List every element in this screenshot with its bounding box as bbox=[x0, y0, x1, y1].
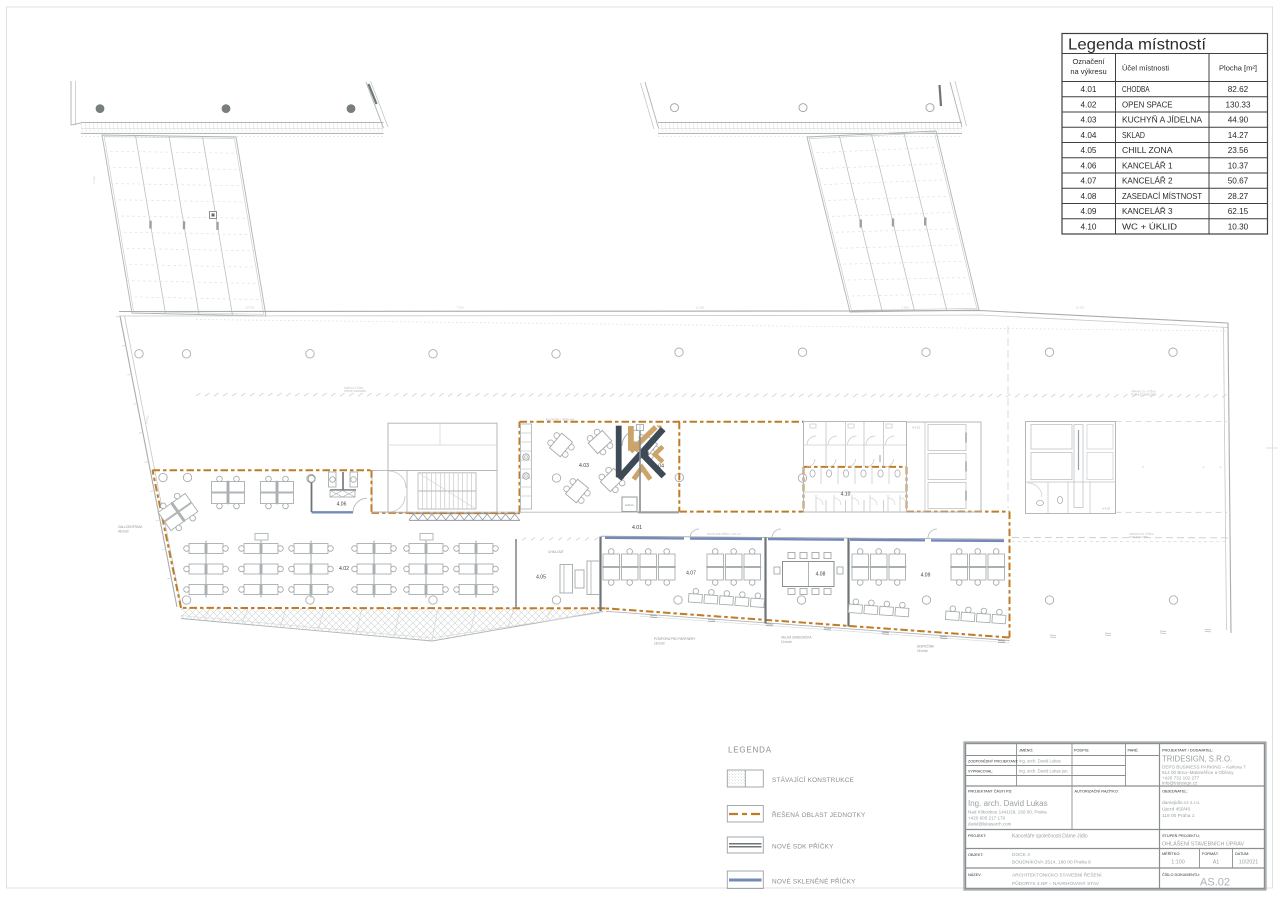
svg-text:PARÉ:: PARÉ: bbox=[1128, 748, 1139, 753]
svg-text:7 425: 7 425 bbox=[902, 306, 909, 310]
svg-text:×: × bbox=[1142, 465, 1144, 469]
svg-text:14.27: 14.27 bbox=[1228, 131, 1249, 140]
svg-text:MĚŘÍTKO:: MĚŘÍTKO: bbox=[1162, 851, 1180, 856]
svg-text:A 4.01: A 4.01 bbox=[912, 426, 920, 430]
svg-text:VELKÁ ZASEDAČKA: VELKÁ ZASEDAČKA bbox=[781, 635, 812, 640]
svg-text:4.01: 4.01 bbox=[1081, 85, 1097, 94]
svg-text:PROJEKTANT / DODAVATEL:: PROJEKTANT / DODAVATEL: bbox=[1162, 749, 1213, 753]
svg-text:ČÍSLO DOKUMENTU:: ČÍSLO DOKUMENTU: bbox=[1162, 872, 1200, 877]
svg-text:BOUDNÍKOVA 2514, 180 00 Praha: BOUDNÍKOVA 2514, 180 00 Praha 8 bbox=[1012, 859, 1091, 866]
svg-text:Účel místnosti: Účel místnosti bbox=[1122, 64, 1169, 73]
svg-text:PODPIS:: PODPIS: bbox=[1074, 749, 1089, 753]
svg-text:24 750: 24 750 bbox=[246, 306, 255, 310]
svg-text:4.02: 4.02 bbox=[1081, 100, 1097, 109]
svg-text:11 250: 11 250 bbox=[696, 306, 705, 310]
svg-text:SKLAD: SKLAD bbox=[1122, 131, 1145, 140]
svg-text:DOCK 4: DOCK 4 bbox=[1012, 852, 1030, 858]
svg-text:4.03: 4.03 bbox=[579, 463, 589, 469]
svg-text:+420 605 217 170: +420 605 217 170 bbox=[968, 816, 1006, 821]
svg-text:CALLCENTRUM: CALLCENTRUM bbox=[118, 525, 142, 529]
svg-text:ŘEŠENÁ OBLAST JEDNOTKY: ŘEŠENÁ OBLAST JEDNOTKY bbox=[772, 810, 866, 819]
svg-text:4.08: 4.08 bbox=[816, 572, 826, 578]
svg-text:Ing. arch. David Lukas jun.: Ing. arch. David Lukas jun. bbox=[1019, 769, 1069, 774]
svg-text:OHLÁŠENÍ STAVEBNÍCH ÚPRAV: OHLÁŠENÍ STAVEBNÍCH ÚPRAV bbox=[1162, 841, 1244, 848]
svg-text:A1: A1 bbox=[1213, 860, 1220, 866]
svg-text:NOVÉ SKLENĚNÉ PŘÍČKY: NOVÉ SKLENĚNÉ PŘÍČKY bbox=[772, 877, 856, 886]
svg-text:CHODBA: CHODBA bbox=[1122, 85, 1150, 94]
svg-text:CHILL ZONA: CHILL ZONA bbox=[1122, 146, 1173, 155]
svg-text:4.03: 4.03 bbox=[1081, 116, 1097, 125]
svg-text:info@tridesign.cz: info@tridesign.cz bbox=[1162, 781, 1198, 786]
svg-text:10.30: 10.30 bbox=[1228, 222, 1249, 231]
svg-text:50.67: 50.67 bbox=[1228, 177, 1249, 186]
svg-text:8 250: 8 250 bbox=[92, 176, 97, 184]
svg-text:4.05: 4.05 bbox=[1081, 146, 1097, 155]
svg-text:KANCELÁŘ 2: KANCELÁŘ 2 bbox=[1122, 176, 1173, 186]
svg-text:AS.02: AS.02 bbox=[1200, 877, 1230, 889]
svg-text:4.01: 4.01 bbox=[632, 525, 642, 531]
svg-text:STÁVAJÍCÍ KONSTRUKCE: STÁVAJÍCÍ KONSTRUKCE bbox=[772, 775, 854, 784]
svg-text:PODHLED 2650: PODHLED 2650 bbox=[1129, 535, 1149, 539]
svg-text:18 míst: 18 míst bbox=[917, 649, 928, 653]
svg-text:4.04: 4.04 bbox=[654, 464, 664, 470]
svg-text:KANCELÁŘ 1: KANCELÁŘ 1 bbox=[1122, 160, 1173, 170]
svg-text:DATUM:: DATUM: bbox=[1235, 852, 1249, 856]
svg-text:×: × bbox=[1202, 466, 1204, 470]
svg-text:Označení: Označení bbox=[1072, 57, 1105, 66]
svg-text:44.90: 44.90 bbox=[1228, 116, 1249, 125]
svg-text:LEGENDA: LEGENDA bbox=[728, 746, 772, 755]
svg-text:CHILLOUT: CHILLOUT bbox=[548, 550, 564, 554]
svg-text:4.09: 4.09 bbox=[1081, 207, 1097, 216]
svg-text:ZODPOVĚDNÝ PROJEKTANT:: ZODPOVĚDNÝ PROJEKTANT: bbox=[968, 759, 1018, 764]
svg-text:4.04: 4.04 bbox=[1081, 131, 1097, 140]
svg-text:KANCELÁŘ 3: KANCELÁŘ 3 bbox=[1122, 206, 1173, 216]
svg-text:OBJEDNATEL:: OBJEDNATEL: bbox=[1162, 790, 1188, 794]
svg-text:STUPEŇ PROJEKTU:: STUPEŇ PROJEKTU: bbox=[1162, 833, 1200, 838]
svg-text:Legenda místností: Legenda místností bbox=[1068, 37, 1207, 54]
svg-text:62.15: 62.15 bbox=[1228, 207, 1249, 216]
svg-text:82.62: 82.62 bbox=[1228, 85, 1249, 94]
svg-text:4.09: 4.09 bbox=[921, 573, 931, 579]
svg-text:AUTORIZAČNÍ RAZÍTKO:: AUTORIZAČNÍ RAZÍTKO: bbox=[1075, 789, 1119, 794]
svg-text:DEPO BUSINESS PARKING – Karlov: DEPO BUSINESS PARKING – Karlova 7 bbox=[1162, 765, 1246, 770]
svg-text:4.07: 4.07 bbox=[686, 571, 696, 577]
svg-text:PROJEKTANT ČÁSTI PD:: PROJEKTANT ČÁSTI PD: bbox=[968, 789, 1012, 794]
svg-text:Nad Klikovkou 1441/29, 150 00,: Nad Klikovkou 1441/29, 150 00, Praha bbox=[968, 810, 1047, 815]
svg-text:PODPORA PRO PARTNERY: PODPORA PRO PARTNERY bbox=[654, 637, 696, 641]
svg-text:Ing. arch. David Lukas: Ing. arch. David Lukas bbox=[1019, 759, 1061, 764]
svg-text:×: × bbox=[1219, 466, 1221, 470]
svg-text:4.10: 4.10 bbox=[841, 492, 851, 498]
svg-text:130.33: 130.33 bbox=[1225, 100, 1250, 109]
svg-text:TRIDESIGN, S.R.O.: TRIDESIGN, S.R.O. bbox=[1162, 755, 1232, 764]
svg-text:46 míst: 46 míst bbox=[118, 530, 129, 534]
svg-text:28.27: 28.27 bbox=[1228, 192, 1249, 201]
svg-text:OPEN SPACE: OPEN SPACE bbox=[1122, 100, 1173, 109]
svg-text:118 00 Praha 1: 118 00 Praha 1 bbox=[1162, 813, 1195, 819]
svg-text:10/2021: 10/2021 bbox=[1239, 860, 1259, 866]
svg-text:16 250: 16 250 bbox=[1076, 306, 1085, 310]
svg-text:NÁZEV:: NÁZEV: bbox=[968, 873, 982, 877]
svg-text:10 míst: 10 míst bbox=[781, 640, 792, 644]
svg-text:VYPRACOVAL:: VYPRACOVAL: bbox=[968, 770, 993, 774]
svg-text:david@lukasarch.com: david@lukasarch.com bbox=[968, 822, 1012, 827]
svg-text:Kanceláře společnosti Dáme Jíd: Kanceláře společnosti Dáme Jídlo bbox=[1012, 834, 1088, 840]
svg-text:Újezd 450/40: Újezd 450/40 bbox=[1162, 806, 1191, 813]
svg-text:4.06: 4.06 bbox=[337, 502, 347, 508]
svg-text:PROJEKT:: PROJEKT: bbox=[968, 834, 986, 838]
svg-text:A 4.02: A 4.02 bbox=[1102, 507, 1110, 511]
svg-text:NOVÉ SDK PŘÍČKY: NOVÉ SDK PŘÍČKY bbox=[772, 842, 834, 851]
svg-text:Ing. arch. David Lukas: Ing. arch. David Lukas bbox=[968, 799, 1048, 808]
svg-text:KUCHYŇ A JÍDELNA: KUCHYŇ A JÍDELNA bbox=[1122, 115, 1203, 125]
svg-text:KUCHYŇ + JÍDELNA: KUCHYŇ + JÍDELNA bbox=[546, 416, 574, 421]
svg-text:JMÉNO:: JMÉNO: bbox=[1019, 748, 1033, 753]
svg-text:FORMÁT:: FORMÁT: bbox=[1202, 852, 1219, 856]
svg-text:1:100: 1:100 bbox=[1171, 860, 1185, 866]
svg-text:4.07: 4.07 bbox=[1081, 177, 1097, 186]
svg-text:4.05: 4.05 bbox=[536, 575, 546, 581]
svg-text:4.08: 4.08 bbox=[1081, 192, 1097, 201]
svg-text:WC + ÚKLID: WC + ÚKLID bbox=[1122, 221, 1177, 231]
svg-text:PODHLED 2650/2800: PODHLED 2650/2800 bbox=[1131, 393, 1157, 397]
svg-text:damejidlo.cz s.r.o.: damejidlo.cz s.r.o. bbox=[1162, 800, 1200, 806]
svg-text:4.06: 4.06 bbox=[1081, 161, 1097, 170]
svg-text:7 425: 7 425 bbox=[457, 306, 464, 310]
svg-text:OBJEKT:: OBJEKT: bbox=[968, 853, 983, 857]
svg-text:PŮDORYS 4.NP – NAVRHOVANÝ STAV: PŮDORYS 4.NP – NAVRHOVANÝ STAV bbox=[1012, 880, 1100, 887]
svg-text:4.10: 4.10 bbox=[1081, 222, 1097, 231]
svg-text:STROP 3300/2800: STROP 3300/2800 bbox=[344, 389, 366, 393]
svg-text:na výkresu: na výkresu bbox=[1070, 67, 1106, 76]
svg-text:ZASEDACÍ MÍSTNOST: ZASEDACÍ MÍSTNOST bbox=[1122, 191, 1202, 201]
svg-text:Plocha [m²]: Plocha [m²] bbox=[1219, 64, 1257, 73]
svg-text:614 00 Brno–Maloměřice a Obřan: 614 00 Brno–Maloměřice a Obřany bbox=[1162, 770, 1234, 775]
svg-text:18 míst: 18 míst bbox=[654, 642, 665, 646]
svg-text:ledbox: ledbox bbox=[625, 503, 634, 507]
svg-text:23.56: 23.56 bbox=[1228, 146, 1249, 155]
svg-text:10.37: 10.37 bbox=[1228, 161, 1249, 170]
svg-text:DISPEČINK: DISPEČINK bbox=[917, 644, 935, 649]
svg-text:4.02: 4.02 bbox=[339, 566, 349, 572]
